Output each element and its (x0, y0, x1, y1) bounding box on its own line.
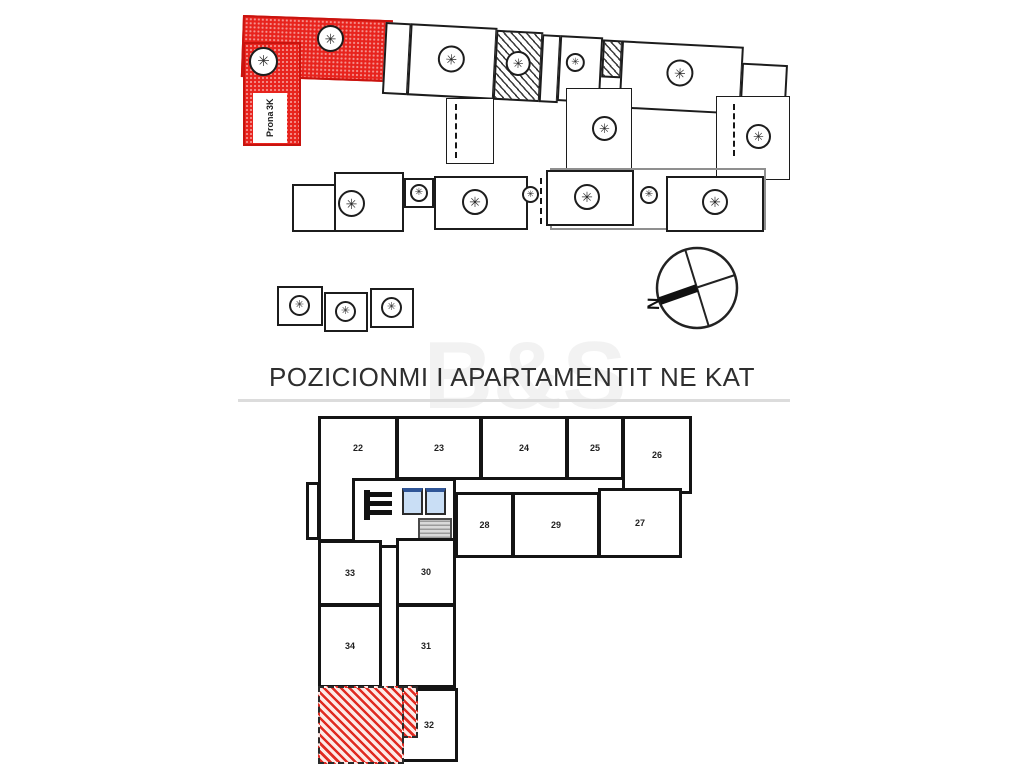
unit-number-marker-icon (317, 25, 344, 52)
room-number: 29 (551, 520, 561, 530)
room-number: 30 (421, 567, 431, 577)
unit-number-marker-icon (381, 297, 402, 318)
room-33: 33 (318, 540, 382, 606)
site-unit (446, 98, 494, 164)
unit-number-marker-icon (522, 186, 539, 203)
dashed-line (733, 104, 735, 156)
unit-number-marker-icon (410, 184, 428, 202)
room-number: 31 (421, 641, 431, 651)
page-title: POZICIONMI I APARTAMENTIT NE KAT (0, 362, 1024, 393)
dashed-line (540, 178, 542, 224)
highlighted-apartment-step (402, 686, 418, 738)
stair-wall (370, 501, 392, 506)
unit-number-marker-icon (462, 189, 488, 215)
unit-number-marker-icon (249, 47, 278, 76)
unit-number-marker-icon (335, 301, 356, 322)
entry-nook (306, 482, 320, 540)
compass-icon: N (645, 238, 745, 338)
highlight-unit-label: Prona 3K (253, 93, 287, 143)
compass-north-label: N (645, 297, 663, 310)
stair-wall (370, 492, 392, 497)
room-25: 25 (566, 416, 624, 480)
unit-number-marker-icon (702, 189, 728, 215)
highlight-unit-type-text: 3K (265, 99, 275, 111)
room-number: 33 (345, 568, 355, 578)
unit-number-marker-icon (640, 186, 658, 204)
unit-number-marker-icon (338, 190, 365, 217)
unit-number-marker-icon (746, 124, 771, 149)
unit-number-marker-icon (574, 184, 600, 210)
staircase (418, 518, 452, 540)
room-number: 34 (345, 641, 355, 651)
site-plan: Prona 3K (0, 0, 1024, 350)
room-31: 31 (396, 604, 456, 688)
room-23: 23 (396, 416, 482, 480)
highlighted-apartment (318, 686, 404, 764)
room-28: 28 (455, 492, 514, 558)
room-27: 27 (598, 488, 682, 558)
room-number: 22 (353, 443, 363, 453)
elevator-shaft (425, 488, 446, 515)
unit-number-marker-icon (289, 295, 310, 316)
dashed-line (455, 104, 457, 158)
room-34: 34 (318, 604, 382, 688)
floor-plan: 22 23 24 25 26 28 29 27 33 34 (0, 405, 1024, 768)
room-number: 27 (635, 518, 645, 528)
room-number: 23 (434, 443, 444, 453)
room-30: 30 (396, 538, 456, 606)
title-divider (238, 399, 790, 402)
room-26: 26 (622, 416, 692, 494)
highlight-unit-label-text: Prona (265, 112, 275, 138)
room-number: 26 (652, 450, 662, 460)
room-29: 29 (512, 492, 600, 558)
room-number: 25 (590, 443, 600, 453)
elevator-shaft (402, 488, 423, 515)
room-number: 24 (519, 443, 529, 453)
room-number: 28 (479, 520, 489, 530)
stair-wall (370, 510, 392, 515)
room-number: 32 (424, 720, 434, 730)
listing-floorplan-image: Prona 3K (0, 0, 1024, 768)
unit-number-marker-icon (592, 116, 617, 141)
room-24: 24 (480, 416, 568, 480)
